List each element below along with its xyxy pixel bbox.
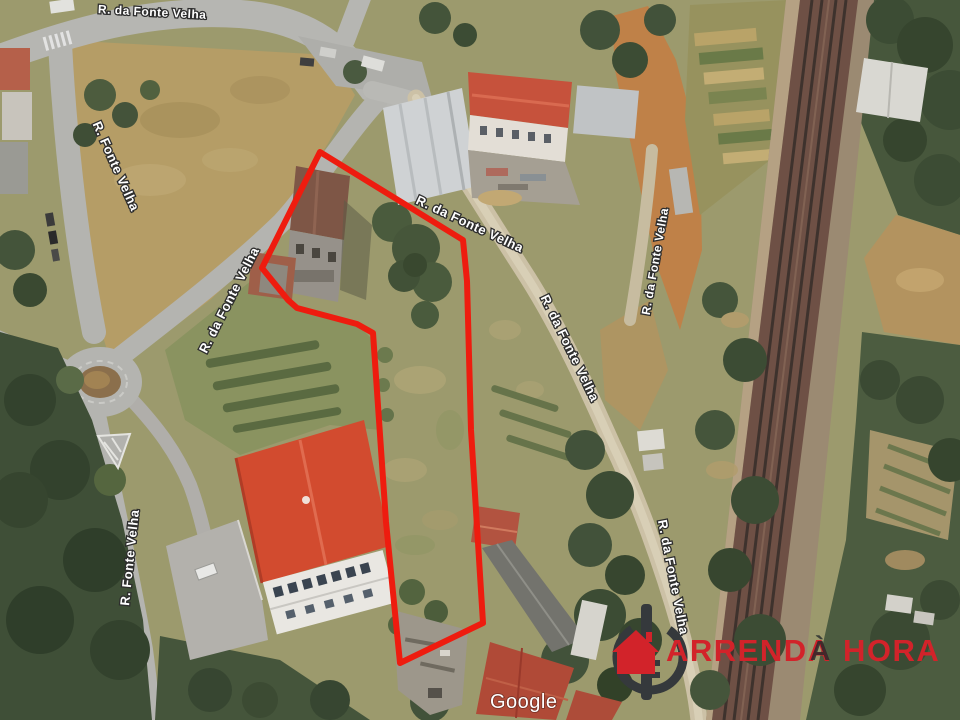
vehicle xyxy=(300,57,315,66)
map-viewport[interactable]: R. da Fonte Velha R. Fonte Velha R. da F… xyxy=(0,0,960,720)
building-grey xyxy=(573,85,639,138)
google-watermark: Google xyxy=(490,691,558,713)
building-top-left-roof xyxy=(0,48,30,90)
satellite-imagery: R. da Fonte Velha R. Fonte Velha R. da F… xyxy=(0,0,960,720)
brand-word-hora: HORA xyxy=(843,633,940,668)
brand-word-arrenda: ARRENDA xyxy=(666,633,832,668)
building-shed xyxy=(637,429,665,452)
building-warehouse xyxy=(383,88,478,205)
brand-word-a: À xyxy=(810,635,830,666)
building-red-roof-house xyxy=(468,72,572,162)
